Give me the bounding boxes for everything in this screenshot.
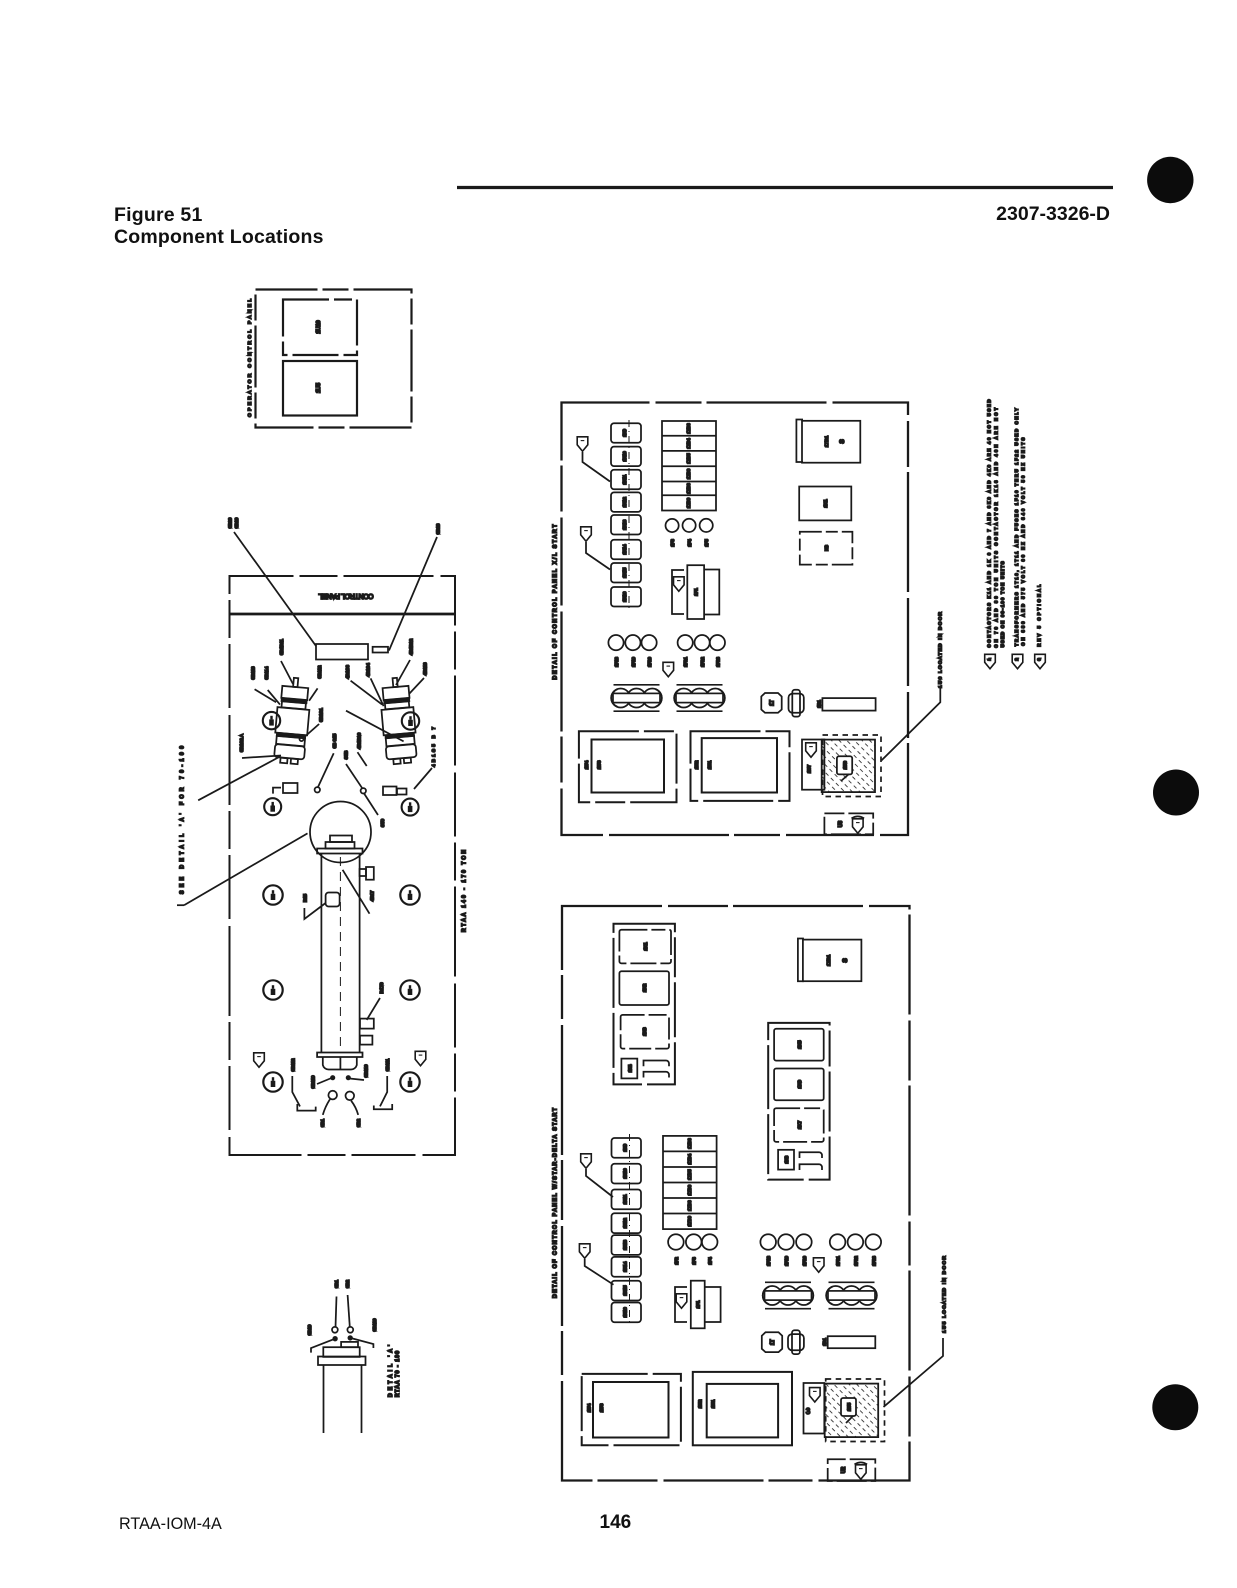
svg-text:U3: U3: [838, 821, 844, 828]
svg-text:4B17: 4B17: [370, 890, 375, 901]
svg-text:CONTACTORS K11 AND 1K 6 AND 7: CONTACTORS K11 AND 1K 6 AND 7 AND 3K6 AN…: [987, 400, 992, 648]
svg-text:1K3: 1K3: [642, 1027, 648, 1036]
svg-text:1K2: 1K2: [642, 983, 648, 992]
svg-text:6B19: 6B19: [307, 1324, 312, 1335]
svg-text:2: 2: [1014, 658, 1019, 661]
svg-text:1F18: 1F18: [614, 656, 619, 667]
svg-text:1: 1: [987, 658, 992, 661]
svg-text:OPERATOR CONTROL PANEL: OPERATOR CONTROL PANEL: [247, 299, 253, 417]
svg-text:1K1: 1K1: [643, 942, 649, 951]
svg-text:1U10: 1U10: [316, 320, 322, 333]
svg-text:1F23: 1F23: [715, 656, 720, 667]
svg-text:1F18: 1F18: [766, 1255, 771, 1266]
svg-text:1TB4: 1TB4: [686, 438, 691, 449]
svg-text:1K6: 1K6: [797, 1080, 803, 1089]
svg-text:4B1S4: 4B1S4: [366, 663, 371, 677]
svg-text:3B113: 3B113: [251, 666, 256, 679]
svg-text:1TB9: 1TB9: [686, 497, 691, 508]
svg-text:6B13: 6B13: [436, 523, 441, 534]
svg-text:6B110: 6B110: [372, 1318, 377, 1331]
svg-text:1K16: 1K16: [623, 1307, 628, 1318]
svg-text:4B1B16: 4B1B16: [356, 732, 361, 749]
svg-text:DETAIL 'A': DETAIL 'A': [388, 1345, 394, 1397]
svg-text:1K5: 1K5: [797, 1040, 803, 1049]
svg-text:ON 380 AND 575 VOLT 60 HZ AND: ON 380 AND 575 VOLT 60 HZ AND 346 VOLT 5…: [1020, 437, 1025, 645]
svg-text:1TB8: 1TB8: [687, 1200, 692, 1211]
svg-text:3B1S1: 3B1S1: [319, 708, 324, 722]
svg-text:1K15: 1K15: [622, 567, 627, 578]
svg-text:SEE DETAIL 'A' FOR 70-100: SEE DETAIL 'A' FOR 70-100: [180, 746, 186, 894]
svg-text:1B1: 1B1: [822, 1338, 827, 1346]
svg-text:1F2: 1F2: [674, 1257, 679, 1265]
svg-text:1F21: 1F21: [836, 1255, 841, 1266]
svg-text:6B112: 6B112: [290, 1058, 295, 1071]
svg-text:6B111: 6B111: [385, 1058, 390, 1071]
svg-text:1F1: 1F1: [696, 1300, 701, 1308]
svg-text:RTAA 140 - 170 TON: RTAA 140 - 170 TON: [462, 850, 468, 932]
svg-text:1K11: 1K11: [622, 474, 627, 484]
svg-text:3: 3: [806, 1407, 811, 1416]
svg-text:1U3: 1U3: [599, 1403, 605, 1412]
svg-text:6B110: 6B110: [364, 1064, 369, 1077]
svg-text:1K7: 1K7: [797, 1120, 803, 1129]
svg-text:1F20: 1F20: [802, 1255, 807, 1266]
svg-text:4B113: 4B113: [423, 662, 428, 675]
svg-text:1K13: 1K13: [622, 519, 627, 530]
svg-text:1F1: 1F1: [694, 588, 699, 596]
svg-text:6B2: 6B2: [345, 1279, 350, 1288]
svg-text:1F23: 1F23: [871, 1255, 876, 1266]
svg-text:1F20: 1F20: [647, 656, 652, 667]
svg-text:3B 915: 3B 915: [332, 733, 337, 748]
svg-text:1K4: 1K4: [627, 1064, 632, 1072]
svg-text:1TB5: 1TB5: [686, 453, 691, 464]
svg-text:6B10: 6B10: [234, 517, 239, 528]
svg-text:U2: U2: [841, 1467, 847, 1474]
svg-text:DETAIL OF CONTROL PANEL X/L ST: DETAIL OF CONTROL PANEL X/L START: [553, 524, 559, 680]
svg-text:1TB3: 1TB3: [686, 423, 691, 434]
svg-text:1U3: 1U3: [597, 760, 603, 769]
svg-text:1T: 1T: [770, 1339, 776, 1345]
svg-text:1U5: 1U5: [847, 1402, 852, 1411]
svg-text:1U1: 1U1: [707, 760, 713, 769]
svg-text:1K9: 1K9: [623, 1143, 628, 1151]
svg-text:1K12: 1K12: [623, 1218, 628, 1229]
svg-text:1F5: 1F5: [704, 539, 709, 547]
svg-text:1K16: 1K16: [622, 591, 627, 602]
svg-text:1F4: 1F4: [687, 539, 692, 547]
svg-text:4B1S5 B 7: 4B1S5 B 7: [431, 727, 436, 767]
svg-text:1F22: 1F22: [700, 656, 705, 667]
svg-text:1K14: 1K14: [622, 544, 627, 555]
svg-text:K3: K3: [824, 545, 830, 551]
svg-text:ON 70 AND 80 TON UNITS CONTACT: ON 70 AND 80 TON UNITS CONTACTOR 1K13 AN…: [994, 407, 999, 647]
svg-text:DETAIL OF CONTROL PANEL W/STAR: DETAIL OF CONTROL PANEL W/STAR-DELTA STA…: [553, 1107, 559, 1298]
svg-text:1F19: 1F19: [631, 656, 636, 667]
svg-text:B1T6: B1T6: [379, 982, 384, 993]
svg-text:1U4: 1U4: [587, 1403, 593, 1412]
svg-text:1TB4: 1TB4: [687, 1153, 692, 1164]
svg-text:1U2: 1U2: [698, 1399, 704, 1408]
svg-text:1F19: 1F19: [784, 1255, 789, 1266]
svg-text:1U2: 1U2: [694, 760, 700, 769]
svg-text:3: 3: [1037, 658, 1042, 661]
svg-text:1TB1: 1TB1: [824, 435, 830, 447]
svg-text:1K8: 1K8: [784, 1155, 789, 1163]
svg-text:6B1: 6B1: [320, 1118, 325, 1127]
svg-text:4B1B12: 4B1B12: [409, 638, 414, 655]
svg-text:USED ON 90-100 TON UNITS: USED ON 90-100 TON UNITS: [1000, 561, 1005, 647]
svg-text:B15: B15: [302, 893, 307, 902]
svg-text:1K14: 1K14: [623, 1261, 628, 1272]
svg-text:TRANSFORMERS 1T10, 1T11 AND FU: TRANSFORMERS 1T10, 1T11 AND FUSES 1F10 T…: [1014, 408, 1019, 646]
svg-text:1U6: 1U6: [843, 761, 848, 770]
svg-text:1B1: 1B1: [817, 700, 822, 708]
svg-text:1U6 LOCATED IN DOOR: 1U6 LOCATED IN DOOR: [938, 611, 944, 688]
svg-text:1TB8: 1TB8: [686, 483, 691, 494]
svg-text:1F22: 1F22: [853, 1255, 858, 1266]
svg-text:3B112: 3B112: [317, 665, 322, 678]
svg-text:1K10: 1K10: [622, 451, 627, 462]
svg-text:RTAA 70 - 100: RTAA 70 - 100: [395, 1351, 401, 1397]
svg-text:3B1B11: 3B1B11: [279, 639, 284, 655]
svg-text:6B2: 6B2: [356, 1118, 361, 1127]
svg-text:1K12: 1K12: [622, 497, 627, 508]
svg-text:6B119: 6B119: [311, 1075, 316, 1088]
svg-text:1TB6: 1TB6: [687, 1184, 692, 1195]
svg-text:1K15: 1K15: [623, 1285, 628, 1296]
svg-text:1K9: 1K9: [622, 429, 627, 437]
svg-text:1K11: 1K11: [623, 1194, 628, 1204]
svg-text:1K1: 1K1: [823, 499, 829, 508]
svg-text:1F3: 1F3: [670, 539, 675, 547]
svg-text:1F3: 1F3: [692, 1257, 697, 1265]
svg-text:1F4: 1F4: [708, 1257, 713, 1265]
svg-text:1K10: 1K10: [623, 1168, 628, 1179]
svg-text:S: S: [842, 958, 849, 963]
svg-text:3B114: 3B114: [264, 666, 269, 679]
svg-text:1TB5: 1TB5: [687, 1169, 692, 1180]
svg-text:1F21: 1F21: [683, 656, 688, 667]
svg-text:3B1S2 A: 3B1S2 A: [239, 733, 244, 752]
svg-text:S: S: [839, 439, 846, 444]
svg-text:1K13: 1K13: [623, 1239, 628, 1250]
svg-text:1U1: 1U1: [711, 1399, 717, 1408]
svg-text:1U5 LOCATED IN DOOR: 1U5 LOCATED IN DOOR: [942, 1255, 948, 1333]
svg-text:1U5: 1U5: [316, 383, 322, 393]
svg-text:4B1S3: 4B1S3: [345, 665, 350, 679]
svg-text:1TB9: 1TB9: [687, 1215, 692, 1226]
svg-text:1TB3: 1TB3: [687, 1138, 692, 1149]
svg-text:1U7: 1U7: [807, 764, 812, 773]
svg-text:1T: 1T: [770, 700, 776, 706]
svg-text:S5B: S5B: [344, 751, 349, 760]
svg-text:1TB6: 1TB6: [686, 468, 691, 479]
svg-text:CONTROL PANEL: CONTROL PANEL: [318, 592, 373, 599]
svg-text:REV 5 OPTIONAL: REV 5 OPTIONAL: [1036, 584, 1041, 647]
svg-text:6B20: 6B20: [228, 517, 233, 528]
svg-text:1TB1: 1TB1: [826, 954, 832, 966]
svg-text:6B1: 6B1: [334, 1279, 339, 1288]
svg-text:1U4: 1U4: [584, 760, 590, 769]
svg-text:S59: S59: [380, 818, 385, 827]
